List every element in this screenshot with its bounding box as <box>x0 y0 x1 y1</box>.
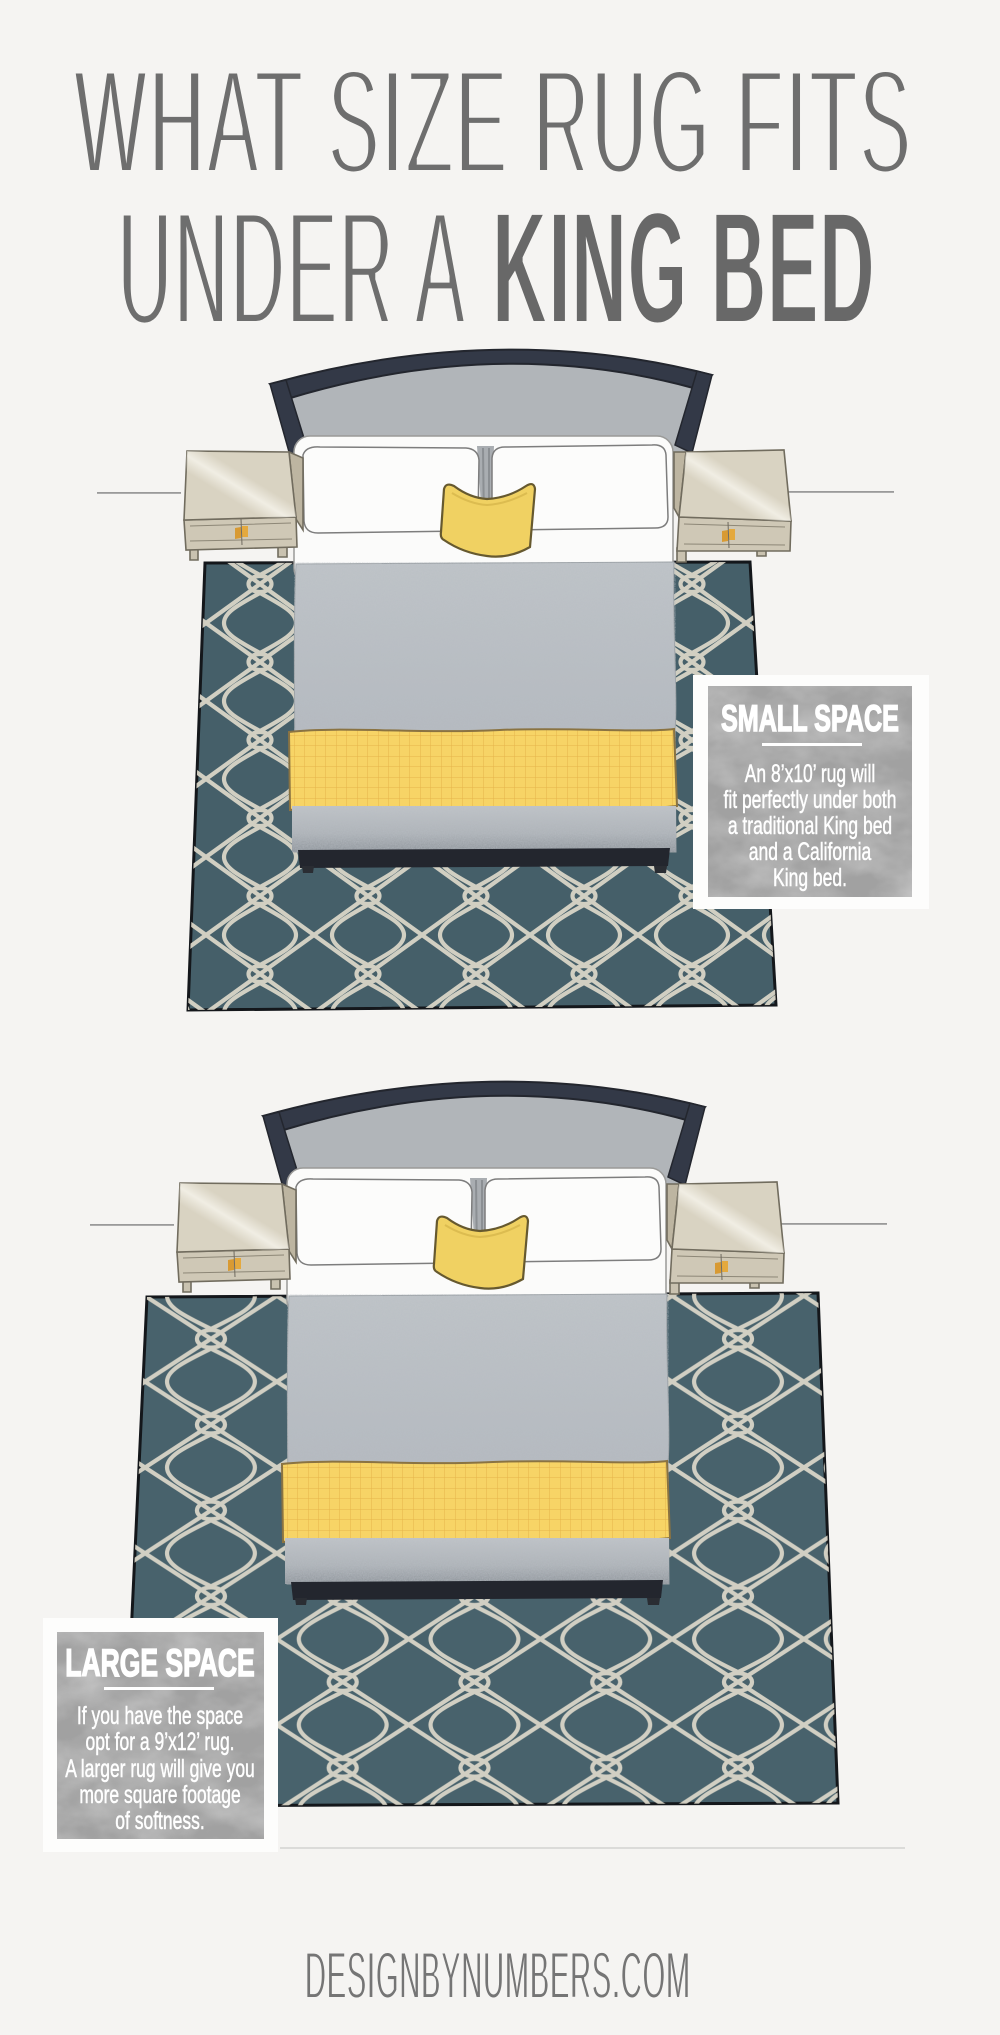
svg-text:DESIGNBYNUMBERS.COM: DESIGNBYNUMBERS.COM <box>305 1938 691 2012</box>
svg-text:An 8’x10’ rug will: An 8’x10’ rug will <box>745 759 876 788</box>
svg-text:and a California: and a California <box>749 837 871 866</box>
svg-text:A larger rug will give you: A larger rug will give you <box>65 1754 255 1783</box>
svg-text:opt for a 9’x12’ rug.: opt for a 9’x12’ rug. <box>85 1727 234 1756</box>
svg-text:UNDER A: UNDER A <box>118 177 468 358</box>
svg-text:a traditional King bed: a traditional King bed <box>728 811 892 840</box>
svg-text:fit perfectly under both: fit perfectly under both <box>723 785 896 814</box>
svg-text:LARGE SPACE: LARGE SPACE <box>65 1642 254 1685</box>
svg-text:KING BED: KING BED <box>493 180 876 358</box>
svg-text:more square footage: more square footage <box>79 1780 240 1809</box>
svg-text:of softness.: of softness. <box>115 1806 204 1835</box>
svg-text:King bed.: King bed. <box>773 863 847 892</box>
svg-text:If you have the space: If you have the space <box>77 1701 243 1730</box>
svg-text:SMALL SPACE: SMALL SPACE <box>721 697 899 739</box>
